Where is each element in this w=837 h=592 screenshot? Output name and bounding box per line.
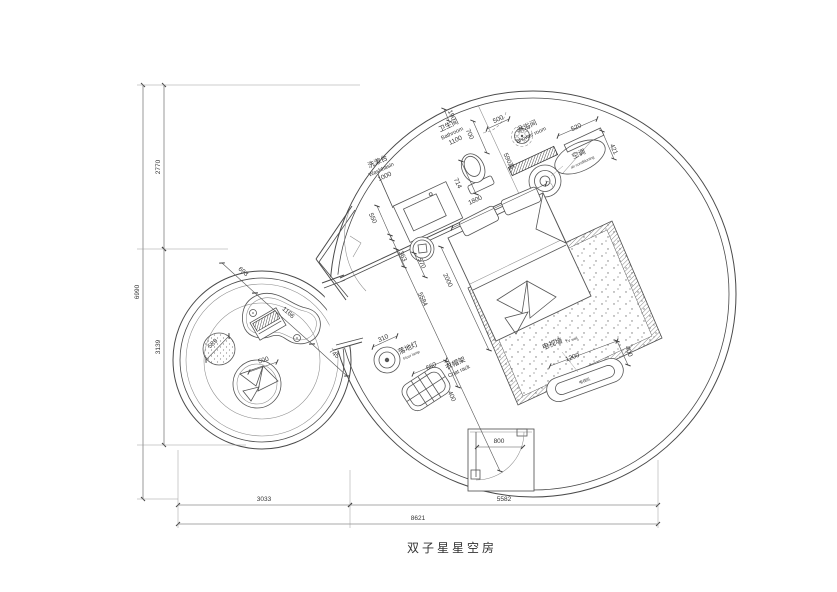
dim-500-beanbag: 500 <box>257 355 270 365</box>
dim-5584: 5584 <box>416 291 429 307</box>
wall-notch <box>350 236 361 257</box>
bean-bag <box>233 360 281 408</box>
toilet <box>455 149 495 194</box>
dim-left-top: 2770 <box>155 159 162 174</box>
dim-421: 421 <box>608 143 619 156</box>
floor-plan-drawing: 190 卫生间 Bathroom 1100 700 500 淋浴间 Shower… <box>0 0 837 592</box>
drawing-title: 双子星星空房 <box>407 540 497 555</box>
dim-door-800: 800 <box>494 438 505 445</box>
kidney-table <box>242 293 320 343</box>
dim-bed-length: 2000 <box>441 272 454 288</box>
dim-700: 700 <box>464 128 475 141</box>
dim-714: 714 <box>452 177 463 190</box>
floor-plan-canvas: 190 卫生间 Bathroom 1100 700 500 淋浴间 Shower… <box>0 0 837 592</box>
shower-shelf <box>564 128 604 152</box>
dim-left-total: 6990 <box>134 284 141 299</box>
dim-bottom-left: 3033 <box>257 496 272 503</box>
dim-left-bottom: 3139 <box>155 339 162 354</box>
dim-363: 363 <box>397 250 408 263</box>
washbasin-counter <box>393 182 462 243</box>
coat-rack <box>399 364 454 414</box>
dim-bottom-total: 8621 <box>411 515 426 522</box>
shower-bench <box>508 146 557 175</box>
pouf <box>203 333 235 365</box>
dim-520: 520 <box>570 122 583 133</box>
dim-bed-width: 1800 <box>467 194 483 207</box>
floor-lamp <box>374 347 400 373</box>
laptop <box>250 308 286 340</box>
dim-bottom-right: 5582 <box>497 496 512 503</box>
dim-693: 693 <box>237 266 250 279</box>
dim-550: 550 <box>367 212 378 225</box>
dim-400-rack: 400 <box>446 390 457 403</box>
